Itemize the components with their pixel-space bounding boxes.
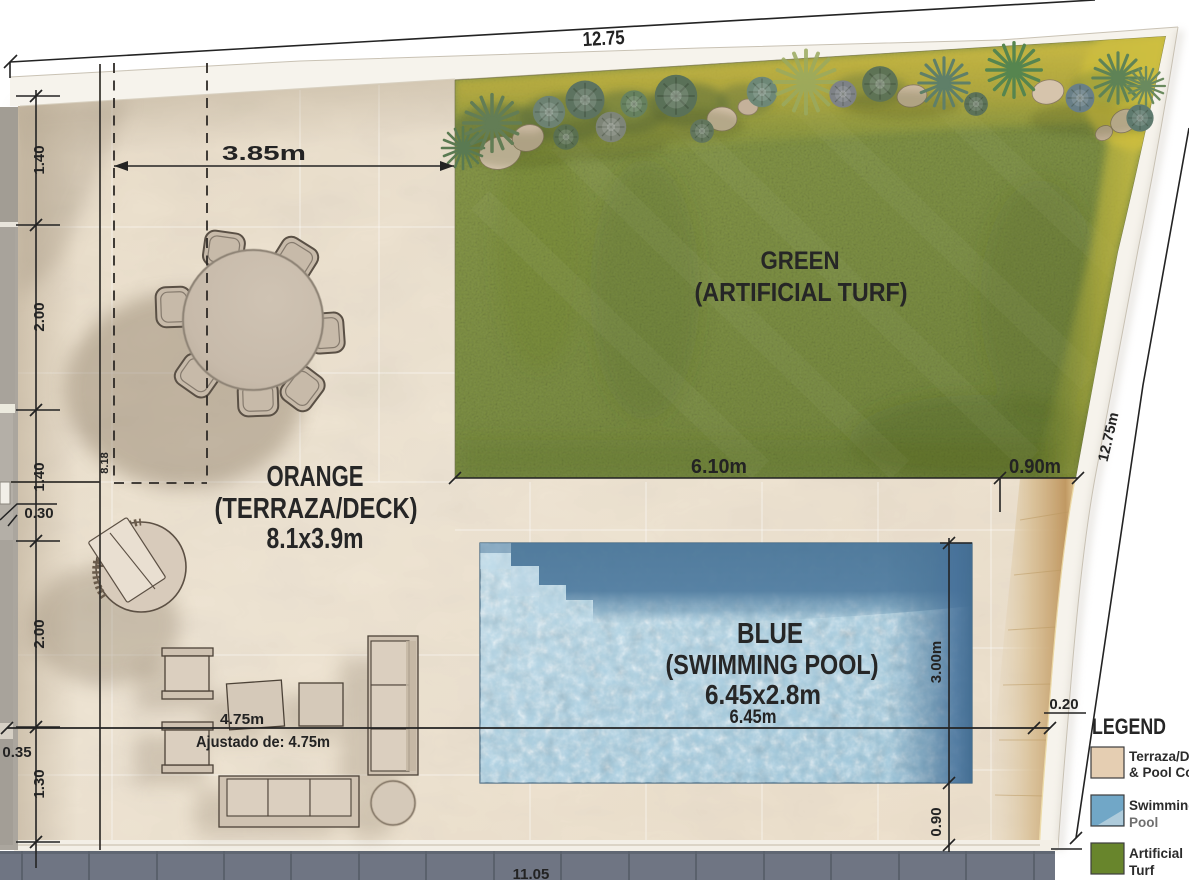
svg-text:LEGEND: LEGEND [1092,714,1166,739]
svg-text:(ARTIFICIAL TURF): (ARTIFICIAL TURF) [695,277,908,307]
svg-text:0.35: 0.35 [2,744,31,761]
svg-text:Artificial: Artificial [1129,846,1183,861]
svg-text:0.90: 0.90 [928,807,945,836]
svg-text:Turf: Turf [1129,863,1155,878]
svg-text:8.1x3.9m: 8.1x3.9m [267,523,364,555]
svg-text:0.90m: 0.90m [1009,456,1061,478]
svg-text:Pool: Pool [1129,815,1158,830]
svg-text:2.00: 2.00 [31,302,48,331]
svg-text:0.20: 0.20 [1049,696,1078,713]
svg-text:0.30: 0.30 [24,505,53,522]
svg-text:4.75m: 4.75m [220,711,264,728]
svg-text:12.75: 12.75 [582,27,625,51]
svg-text:Swimming: Swimming [1129,798,1189,813]
svg-text:6.45x2.8m: 6.45x2.8m [705,679,821,710]
svg-text:2.00: 2.00 [31,619,48,648]
svg-text:3.00m: 3.00m [928,641,945,684]
svg-text:GREEN: GREEN [761,247,840,275]
svg-text:1.40: 1.40 [31,145,48,174]
svg-text:6.45m: 6.45m [730,707,777,728]
svg-text:BLUE: BLUE [737,618,803,650]
svg-text:6.10m: 6.10m [691,456,747,478]
svg-text:& Pool Coping: & Pool Coping [1129,765,1189,780]
svg-text:ORANGE: ORANGE [267,461,364,493]
svg-text:Ajustado de: 4.75m: Ajustado de: 4.75m [196,734,330,751]
svg-text:1.30: 1.30 [31,769,48,798]
svg-text:1.40: 1.40 [31,462,48,491]
svg-text:3.85m: 3.85m [222,143,306,165]
svg-text:(TERRAZA/DECK): (TERRAZA/DECK) [215,493,418,525]
svg-text:11.05: 11.05 [513,866,550,880]
svg-text:Terraza/Deck: Terraza/Deck [1129,749,1189,764]
svg-text:(SWIMMING POOL): (SWIMMING POOL) [666,649,879,680]
